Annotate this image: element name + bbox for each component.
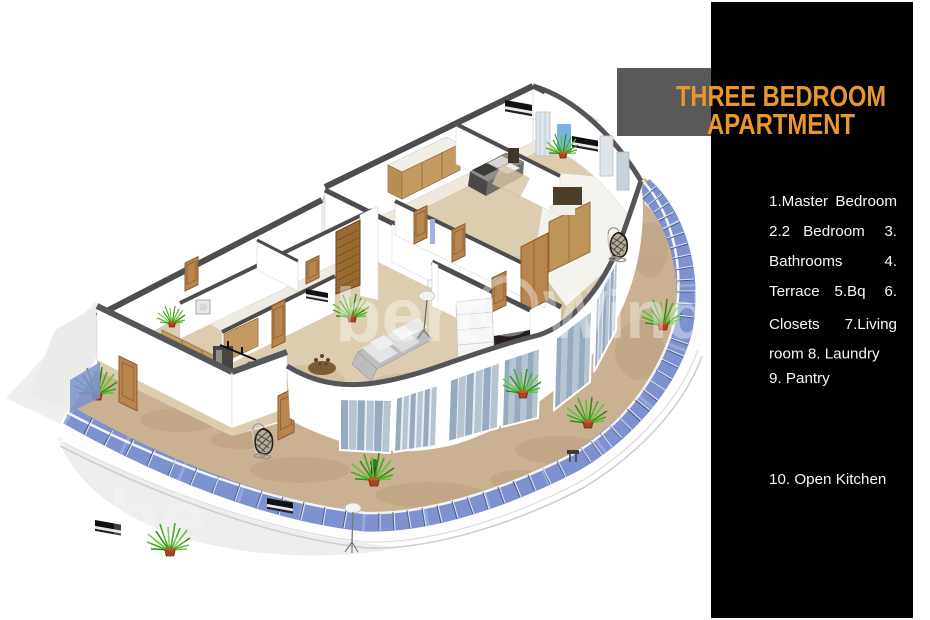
svg-text:2.2: 2.2 bbox=[769, 223, 790, 240]
svg-text:Terrace: Terrace bbox=[769, 283, 820, 300]
svg-text:10. Open Kitchen: 10. Open Kitchen bbox=[769, 471, 886, 488]
svg-text:bert: bert bbox=[335, 273, 479, 358]
svg-text:Bathrooms: Bathrooms bbox=[769, 253, 843, 270]
svg-text:APARTMENT: APARTMENT bbox=[707, 109, 855, 141]
svg-text:Bedroom: Bedroom bbox=[835, 193, 897, 210]
svg-text:5.Bq: 5.Bq bbox=[834, 283, 865, 300]
svg-text:Bedroom: Bedroom bbox=[803, 223, 865, 240]
svg-text:3.: 3. bbox=[884, 223, 897, 240]
svg-text:6.: 6. bbox=[884, 283, 897, 300]
svg-text:4.: 4. bbox=[884, 253, 897, 270]
svg-text:Closets: Closets bbox=[769, 316, 820, 333]
svg-text:be: be bbox=[108, 472, 206, 566]
svg-text:room 8. Laundry: room 8. Laundry bbox=[769, 346, 880, 363]
svg-text:Wind: Wind bbox=[543, 277, 709, 353]
svg-text:9. Pantry: 9. Pantry bbox=[769, 370, 830, 387]
svg-text:1.Master: 1.Master bbox=[769, 193, 828, 210]
svg-text:7.Living: 7.Living bbox=[845, 316, 897, 333]
